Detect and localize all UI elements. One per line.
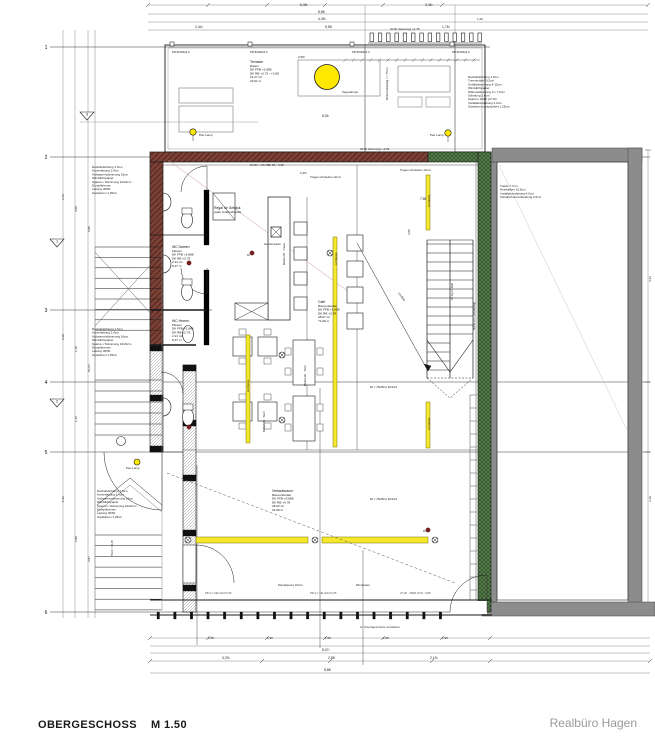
svg-text:6: 6 [45,610,48,616]
svg-text:8,34¹: 8,34¹ [322,114,329,118]
svg-text:3,18: 3,18 [61,334,65,340]
outdoor-stair [95,247,183,610]
svg-text:(statt Unterschrank): (statt Unterschrank) [214,210,241,214]
firm-name: Realbüro Hagen [550,716,637,730]
svg-text:Lichtleiste: Lichtleiste [427,194,431,207]
svg-text:6,88: 6,88 [87,226,91,232]
svg-text:PR 80x80x2.0: PR 80x80x2.0 [172,50,190,54]
svg-text:5% R = 10,05: 5% R = 10,05 [110,540,114,556]
svg-text:PR 80x80x2.0: PR 80x80x2.0 [250,50,268,54]
svg-text:20 RI (Setzung) +2,78: 20 RI (Setzung) +2,78 [390,27,420,31]
svg-text:31.90 m: 31.90 m [272,508,284,512]
svg-text:3: 3 [45,308,48,314]
axis-grid: 123456312 [45,45,650,616]
svg-text:Tageslampe: Tageslampe [342,90,359,94]
svg-text:Lichtleiste: Lichtleiste [427,417,431,430]
svg-text:1,55: 1,55 [325,636,331,640]
sheet-title-text: OBERGESCHOSS [38,719,137,731]
svg-text:Rinnkasten: Rinnkasten [356,583,370,587]
svg-text:1,55: 1,55 [383,636,389,640]
svg-text:3,46¹: 3,46¹ [425,3,434,7]
svg-text:Lauflinie: Lauflinie [397,291,407,302]
svg-text:Pan Lamp: Pan Lamp [430,133,444,137]
svg-text:PR 80x80x2.0: PR 80x80x2.0 [452,50,470,54]
svg-text:Lichtleiste: Lichtleiste [334,252,338,265]
svg-text:5: 5 [45,450,48,456]
floor-plan-canvas: 123456312TerrasseDielenDK FFB +2.888DK R… [0,0,655,751]
svg-text:Mörtel 10 lt. (Werkseitig): Mörtel 10 lt. (Werkseitig) [472,302,476,330]
svg-text:8.27 m: 8.27 m [172,264,182,268]
svg-text:60: 60 [247,254,250,257]
svg-text:1,55: 1,55 [267,636,273,640]
svg-text:Pan Lamp: Pan Lamp [126,466,140,470]
svg-text:2,44¹: 2,44¹ [195,25,204,29]
svg-text:1,76¹: 1,76¹ [442,25,451,29]
svg-text:1: 1 [45,45,48,51]
svg-text:Gipskarton gespachtelt 1,25cm: Gipskarton gespachtelt 1,25cm [468,105,510,109]
svg-text:Tragen schrauben 12mm: Tragen schrauben 12mm [310,175,342,179]
svg-text:71.06 m: 71.06 m [318,319,330,323]
svg-text:2,88: 2,88 [74,536,78,542]
main-building-walls [150,152,492,619]
svg-text:1,18: 1,18 [74,346,78,352]
svg-text:8.27 m: 8.27 m [172,338,182,342]
svg-text:PR 80x80x2.0: PR 80x80x2.0 [352,50,370,54]
svg-text:8,07¹: 8,07¹ [322,648,331,652]
sheet-scale: M 1.50 [151,719,187,731]
svg-text:3,19: 3,19 [648,496,652,502]
svg-text:2: 2 [56,400,58,404]
svg-text:PR st = 101.0x0.0 0.05: PR st = 101.0x0.0 0.05 [205,591,232,595]
svg-text:Gipskarton 1,25cm: Gipskarton 1,25cm [92,191,118,195]
svg-text:1,55: 1,55 [442,636,448,640]
svg-text:Schallschutzverkleidung 2,5cm: Schallschutzverkleidung 2,5cm [500,195,542,199]
svg-text:60 × 15/28cm 90/14/1: 60 × 15/28cm 90/14/1 [370,385,398,389]
svg-text:Gipskarton 1,25cm: Gipskarton 1,25cm [92,353,118,357]
svg-text:Möbel beidseitig h = 75cm: Möbel beidseitig h = 75cm [385,67,389,100]
svg-text:18 Stg 17,5/28: 18 Stg 17,5/28 [450,283,454,300]
svg-text:20 RI (Setzung) +2,82: 20 RI (Setzung) +2,82 [360,147,390,151]
svg-text:Möbel 2D - Tisch: Möbel 2D - Tisch [262,411,266,432]
svg-text:Möbel 2D - Theke: Möbel 2D - Theke [282,242,286,265]
svg-text:22.01 m: 22.01 m [250,79,262,83]
svg-text:60 × 15/28cm 90/14/1: 60 × 15/28cm 90/14/1 [370,497,398,501]
sheet-title: OBERGESCHOSSM 1.50 [38,719,187,731]
svg-text:2,88: 2,88 [328,656,335,660]
svg-text:4: 4 [45,380,48,386]
svg-text:1,62: 1,62 [61,496,65,502]
svg-text:3,72: 3,72 [61,194,65,200]
svg-text:Dampfsperre 10mm: Dampfsperre 10mm [278,583,303,587]
svg-text:3,58: 3,58 [74,206,78,212]
svg-text:Tragen schrauben 12mm: Tragen schrauben 12mm [400,168,432,172]
svg-text:2,25¹: 2,25¹ [300,171,307,175]
svg-text:4,44: 4,44 [648,276,652,282]
svg-text:Lichtleiste: Lichtleiste [246,379,250,392]
svg-text:Gipskarton 1,25cm: Gipskarton 1,25cm [97,515,123,519]
main-stair [357,240,473,398]
svg-text:1: 1 [56,240,58,244]
svg-text:4,05¹: 4,05¹ [318,17,327,21]
svg-text:8,88: 8,88 [324,668,331,672]
svg-text:3,29¹: 3,29¹ [222,656,231,660]
svg-text:DI DK = OK OBF 25 = 6,58: DI DK = OK OBF 25 = 6,58 [250,163,284,167]
svg-text:2: 2 [45,155,48,161]
svg-text:Möbel 2D - Tisch: Möbel 2D - Tisch [303,365,307,386]
annotations: TerrasseDielenDK FFB +2.888DK RB +2.73 -… [61,3,652,672]
svg-text:3: 3 [86,113,88,117]
svg-text:1,55: 1,55 [208,636,214,640]
svg-text:3,87: 3,87 [87,556,91,562]
svg-text:7,58: 7,58 [420,197,426,201]
svg-text:im Kriechgeschoss verstärken: im Kriechgeschoss verstärken [360,625,400,629]
svg-text:1,15: 1,15 [74,416,78,422]
svg-text:Geschirrspüler: Geschirrspüler [264,242,281,246]
svg-text:10,63: 10,63 [87,364,91,372]
svg-text:5,38¹: 5,38¹ [300,3,309,7]
svg-text:2,58¹: 2,58¹ [298,55,305,59]
svg-text:Pan Lamp: Pan Lamp [199,133,213,137]
svg-text:8,86: 8,86 [318,10,325,14]
svg-text:27 UK - 25/05 N UK - 5,88: 27 UK - 25/05 N UK - 5,88 [400,591,431,595]
svg-text:1,20: 1,20 [477,17,483,21]
svg-text:2,19¹: 2,19¹ [430,656,439,660]
svg-text:5,58: 5,58 [325,25,332,29]
svg-text:3,05: 3,05 [407,229,411,235]
svg-text:PR st = 101.0x0.0 0.05: PR st = 101.0x0.0 0.05 [310,591,337,595]
